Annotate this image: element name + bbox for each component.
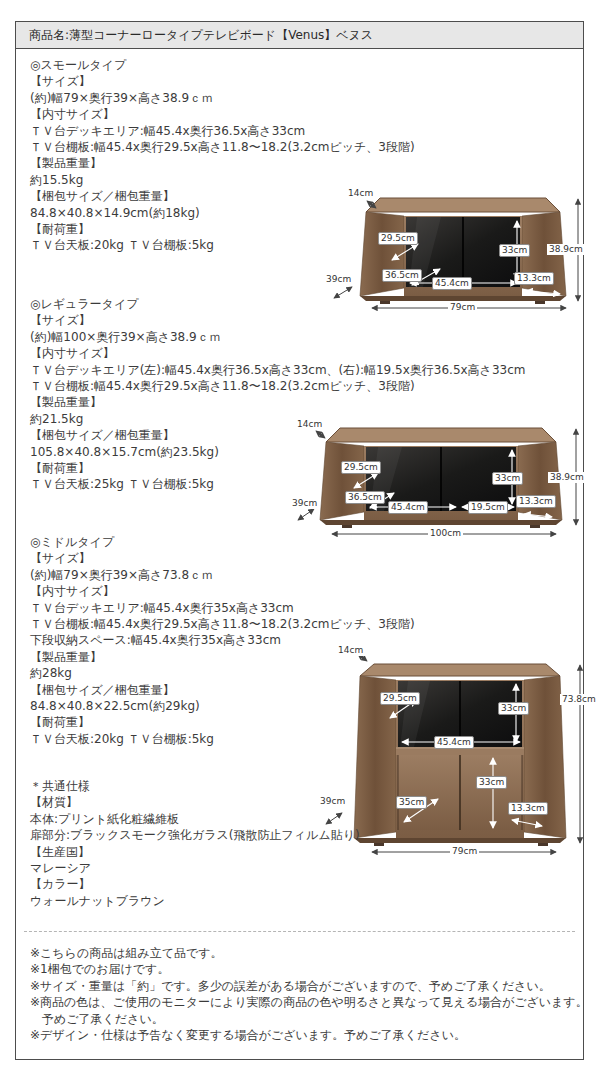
dim-label: 39cm	[324, 274, 353, 285]
spec-line: ＴＶ台棚板:幅45.4x奥行29.5x高さ11.8〜18.2(3.2cmピッチ、…	[30, 139, 415, 155]
dim-label: 33cm	[499, 244, 530, 257]
dim-label: 19.5cm	[468, 501, 508, 514]
spec-sheet: 商品名:薄型コーナーロータイプテレビボード【Venus】ベヌス ◎スモールタイプ…	[15, 21, 584, 1060]
spec-line: 【サイズ】	[30, 312, 525, 328]
spec-line: マレーシア	[30, 860, 360, 876]
spec-line: ＴＶ台デッキエリア(左):幅45.4x奥行36.5x高さ33cm、(右):幅19…	[30, 362, 525, 378]
section-common-spec: ＊共通仕様 【材質】 本体:プリント紙化粧繊維板 扉部分:ブラックスモーク強化ガ…	[30, 778, 360, 909]
dim-label: 14cm	[346, 188, 375, 199]
cabinet-illustration-regular	[290, 396, 596, 546]
dim-label: 38.9cm	[548, 472, 586, 483]
spec-line: 【内寸サイズ】	[30, 583, 415, 599]
dim-label: 79cm	[450, 846, 479, 857]
note-line: 予めご了承ください。	[30, 1011, 588, 1027]
spec-line: 扉部分:ブラックスモーク強化ガラス(飛散防止フィルム貼り)	[30, 827, 360, 843]
note-line: ※デザイン・仕様は予告なく変更する場合がございます。予めご了承ください。	[30, 1027, 588, 1043]
dim-label: 45.4cm	[388, 501, 428, 514]
dim-label: 36.5cm	[382, 269, 422, 282]
notes-section: ※こちらの商品は組み立て品です。 ※1梱包でのお届けです。 ※サイズ・重量は「約…	[30, 945, 588, 1043]
dim-label: 13.3cm	[514, 272, 554, 285]
spec-line: 【内寸サイズ】	[30, 106, 415, 122]
note-line: ※サイズ・重量は「約」です。多少の誤差がある場合がございますので、予めご了承くだ…	[30, 978, 588, 994]
dim-label: 100cm	[428, 528, 463, 539]
dim-label: 39cm	[290, 498, 319, 509]
spec-line: 【材質】	[30, 794, 360, 810]
regular-type-diagram: 14cm 29.5cm 36.5cm 39cm 45.4cm 19.5cm 33…	[290, 396, 596, 546]
dim-label: 33cm	[498, 702, 529, 715]
spec-line: (約)幅79×奥行39×高さ73.8ｃｍ	[30, 567, 415, 583]
section-heading: ◎スモールタイプ	[30, 57, 415, 73]
dim-label: 29.5cm	[341, 461, 381, 474]
spec-line: 本体:プリント紙化粧繊維板	[30, 811, 360, 827]
dim-label: 33cm	[492, 472, 523, 485]
dim-label: 13.3cm	[516, 495, 556, 508]
dim-label: 29.5cm	[378, 232, 418, 245]
section-heading: ◎レギュラータイプ	[30, 296, 525, 312]
dim-label: 13.3cm	[508, 802, 548, 815]
product-title: 商品名:薄型コーナーロータイプテレビボード【Venus】ベヌス	[29, 27, 373, 44]
note-line: ※1梱包でのお届けです。	[30, 961, 588, 977]
note-line: ※こちらの商品は組み立て品です。	[30, 945, 588, 961]
section-heading: ◎ミドルタイプ	[30, 534, 415, 550]
spec-line: ＴＶ台棚板:幅45.4x奥行29.5x高さ11.8〜18.2(3.2cmピッチ、…	[30, 378, 525, 394]
spec-line: 【カラー】	[30, 876, 360, 892]
dim-label: 33cm	[476, 776, 507, 789]
spec-line: 【サイズ】	[30, 550, 415, 566]
dim-label: 38.9cm	[547, 244, 585, 255]
spec-line: (約)幅100×奥行39×高さ38.9ｃｍ	[30, 329, 525, 345]
spec-line: 【サイズ】	[30, 73, 415, 89]
spec-line: ＴＶ台デッキエリア:幅45.4x奥行36.5x高さ33cm	[30, 123, 415, 139]
section-heading: ＊共通仕様	[30, 778, 360, 794]
dim-label: 29.5cm	[380, 692, 420, 705]
spec-content: ◎スモールタイプ 【サイズ】 (約)幅79×奥行39×高さ38.9ｃｍ 【内寸サ…	[16, 49, 583, 1060]
spec-line: 【生産国】	[30, 844, 360, 860]
dim-label: 35cm	[396, 796, 427, 809]
dashed-divider	[24, 931, 575, 932]
small-type-diagram: 14cm 29.5cm 36.5cm 39cm 45.4cm 33cm 13.3…	[320, 186, 592, 314]
spec-line: ＴＶ台デッキエリア:幅45.4x奥行35x高さ33cm	[30, 600, 415, 616]
dim-label: 36.5cm	[345, 491, 385, 504]
dim-label: 45.4cm	[432, 277, 472, 290]
dim-label: 14cm	[336, 645, 365, 656]
spec-line: ＴＶ台棚板:幅45.4x奥行29.5x高さ11.8〜18.2(3.2cmピッチ、…	[30, 616, 415, 632]
dim-label: 73.8cm	[560, 694, 598, 705]
spec-line: 【製品重量】	[30, 155, 415, 171]
product-name-header: 商品名:薄型コーナーロータイプテレビボード【Venus】ベヌス	[16, 22, 583, 49]
dim-label: 14cm	[295, 419, 324, 430]
spec-line: (約)幅79×奥行39×高さ38.9ｃｍ	[30, 90, 415, 106]
spec-line: 【内寸サイズ】	[30, 345, 525, 361]
note-line: ※商品の色は、ご使用のモニターにより実際の商品の色や明るさと異なって見える場合が…	[30, 994, 588, 1010]
dim-label: 45.4cm	[434, 736, 474, 749]
spec-line: ウォールナットブラウン	[30, 893, 360, 909]
